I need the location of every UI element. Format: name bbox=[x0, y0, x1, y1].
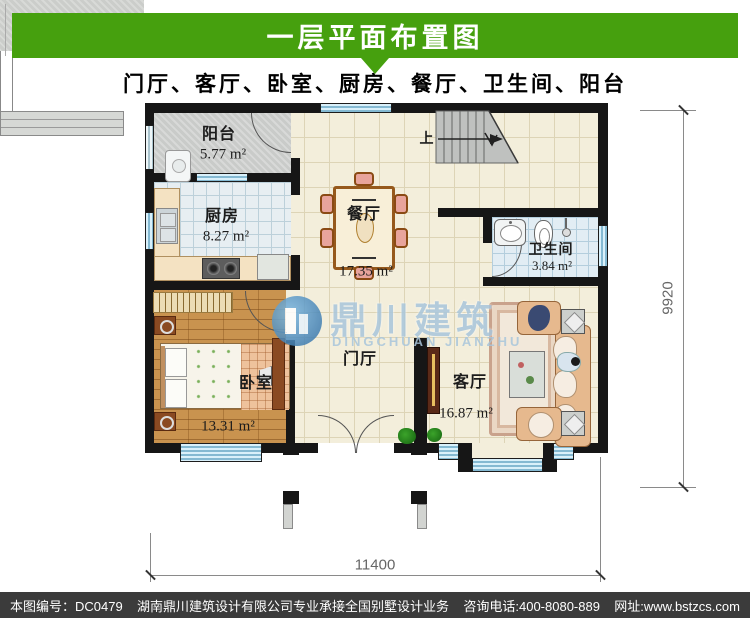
window-balcony-kitchen bbox=[196, 173, 248, 182]
dining-chair-right-2 bbox=[394, 228, 408, 248]
dim-line-right bbox=[683, 110, 684, 487]
nightstand-top bbox=[154, 316, 176, 335]
dim-line-bottom bbox=[150, 575, 600, 576]
footer-drawing-number: 本图编号：DC0479 bbox=[10, 596, 123, 615]
bay-column-left bbox=[458, 443, 472, 472]
washing-machine bbox=[165, 150, 191, 182]
fridge bbox=[257, 254, 289, 280]
bedroom-tv-cabinet bbox=[272, 338, 285, 410]
dining-chair-right-1 bbox=[394, 194, 408, 214]
room-list-subtitle: 门厅、客厅、卧室、厨房、餐厅、卫生间、阳台 bbox=[0, 68, 750, 98]
person-armchair bbox=[528, 305, 550, 331]
porch-column-bl bbox=[283, 491, 299, 504]
window-balcony-left bbox=[145, 125, 154, 170]
balcony-area: 5.77 m² bbox=[200, 147, 246, 164]
footer-phone: 咨询电话:400-8080-889 bbox=[463, 596, 600, 615]
bay-window-floor bbox=[472, 443, 543, 459]
dining-chair-left-1 bbox=[320, 194, 334, 214]
shower-stem bbox=[565, 218, 567, 228]
bathroom-sink bbox=[494, 219, 526, 246]
bathroom-area: 3.84 m² bbox=[532, 258, 572, 274]
entry-steps bbox=[0, 111, 124, 136]
porch-column-br bbox=[411, 491, 427, 504]
shower-head bbox=[562, 228, 571, 237]
window-top bbox=[320, 103, 392, 113]
dim-ext-bottom-right bbox=[600, 457, 601, 582]
wall-right-upper bbox=[598, 103, 608, 225]
footer-company: 湖南鼎川建筑设计有限公司专业承接全国别墅设计业务 bbox=[137, 596, 449, 615]
armchair-bottom bbox=[516, 407, 562, 441]
porch-column-tl bbox=[283, 443, 299, 455]
bathroom-label: 卫生间 bbox=[529, 239, 574, 259]
wall-bathroom-left bbox=[483, 217, 492, 243]
coffee-table bbox=[509, 351, 545, 398]
title-bar: 一层平面布置图 bbox=[12, 13, 738, 58]
pillow-2 bbox=[165, 379, 187, 408]
kitchen-sink bbox=[156, 208, 178, 244]
wardrobe bbox=[153, 292, 233, 313]
dining-area: 17.35 m² bbox=[339, 264, 393, 281]
bedroom-area: 13.31 m² bbox=[201, 419, 255, 436]
wall-bottom-1 bbox=[145, 443, 180, 453]
stairs-up-label: 上 bbox=[420, 128, 435, 148]
living-tv-cabinet bbox=[427, 347, 440, 414]
hall-label: 门厅 bbox=[343, 345, 377, 369]
dining-label: 餐厅 bbox=[347, 200, 381, 224]
steps-rail-right bbox=[417, 504, 427, 529]
armchair-top bbox=[517, 301, 561, 335]
window-living-bottom-left bbox=[438, 443, 459, 460]
window-bathroom-right bbox=[598, 225, 608, 267]
dim-width-value: 11400 bbox=[355, 557, 396, 574]
wall-balcony-right bbox=[291, 158, 300, 182]
dining-table bbox=[333, 186, 395, 270]
bedroom-label: 卧室 bbox=[239, 369, 273, 393]
nightstand-bottom bbox=[154, 412, 176, 431]
kitchen-label: 厨房 bbox=[205, 202, 239, 226]
dining-chair-top bbox=[354, 172, 374, 186]
living-area: 16.87 m² bbox=[439, 406, 493, 423]
dining-chair-left-2 bbox=[320, 228, 334, 248]
window-bay bbox=[472, 458, 543, 472]
footer-website: 网址:www.bstzcs.com bbox=[614, 596, 740, 615]
stove bbox=[202, 258, 240, 279]
wall-kitchen-right-1 bbox=[291, 182, 300, 195]
dim-ext-right-bottom bbox=[640, 487, 696, 488]
pillow-1 bbox=[165, 348, 187, 377]
steps-rail-left bbox=[283, 504, 293, 529]
wall-left-1 bbox=[145, 103, 154, 125]
porch-column-tr bbox=[411, 443, 427, 455]
balcony-label: 阳台 bbox=[202, 120, 236, 144]
wall-top-left bbox=[145, 103, 320, 113]
wall-bathroom-top bbox=[438, 208, 608, 217]
dim-ext-right-top bbox=[640, 110, 696, 111]
plant-bedroom bbox=[398, 428, 416, 444]
dim-height-value: 9920 bbox=[660, 281, 677, 314]
window-kitchen-left bbox=[145, 212, 154, 250]
window-bedroom-bottom bbox=[180, 443, 262, 462]
side-table-top bbox=[561, 309, 585, 334]
person-sofa bbox=[557, 352, 581, 372]
floor-plan-page: 一层平面布置图 门厅、客厅、卧室、厨房、餐厅、卫生间、阳台 bbox=[0, 0, 750, 618]
wall-bathroom-bottom bbox=[483, 277, 599, 286]
footer-bar: 本图编号：DC0479 湖南鼎川建筑设计有限公司专业承接全国别墅设计业务 咨询电… bbox=[0, 592, 750, 618]
kitchen-area: 8.27 m² bbox=[203, 229, 249, 246]
living-label: 客厅 bbox=[453, 368, 487, 392]
stairs bbox=[435, 110, 525, 164]
wall-kitchen-bottom bbox=[145, 281, 300, 290]
wall-right-lower bbox=[598, 267, 608, 453]
side-table-bottom bbox=[561, 411, 585, 436]
page-title: 一层平面布置图 bbox=[267, 16, 484, 55]
